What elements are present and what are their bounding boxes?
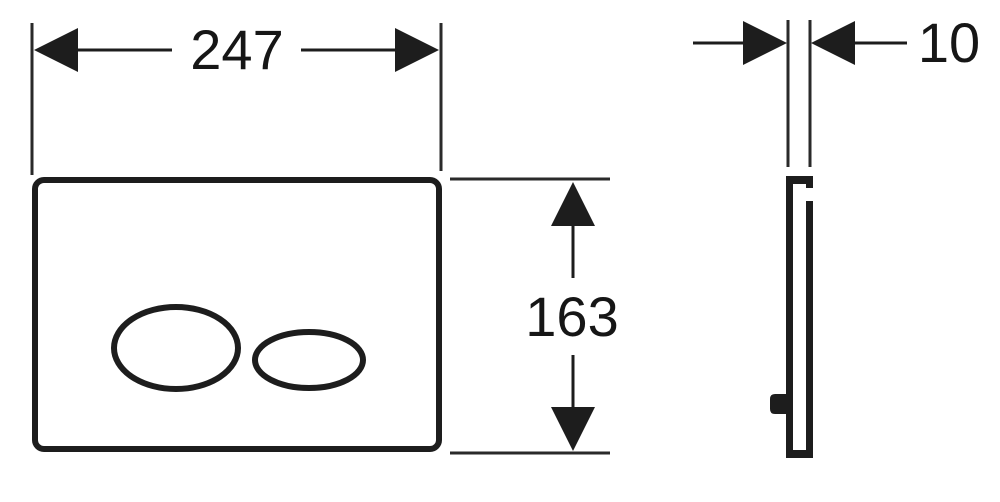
plate-side-notch [805,188,813,201]
height-arrow-down-icon [551,407,595,451]
plate-side-profile [770,176,813,458]
height-dimension: 163 [450,179,619,453]
height-arrow-up-icon [551,182,595,226]
width-dimension: 247 [32,18,441,175]
thickness-arrow-right-icon [743,21,787,65]
plate-side-inner-face [793,184,806,450]
thickness-dimension-label: 10 [918,11,980,74]
large-flush-button [114,307,238,389]
plate-front-outline [35,180,439,449]
thickness-arrow-left-icon [811,21,855,65]
width-arrow-right-icon [395,28,439,72]
dimension-drawing: 247 163 [0,0,1000,502]
width-arrow-left-icon [34,28,78,72]
thickness-dimension: 10 [693,11,980,167]
small-flush-button [255,332,363,388]
width-dimension-label: 247 [190,18,283,81]
side-view [770,176,813,458]
technical-drawing-canvas: 247 163 [0,0,1000,502]
height-dimension-label: 163 [525,285,618,348]
front-view [35,180,439,449]
